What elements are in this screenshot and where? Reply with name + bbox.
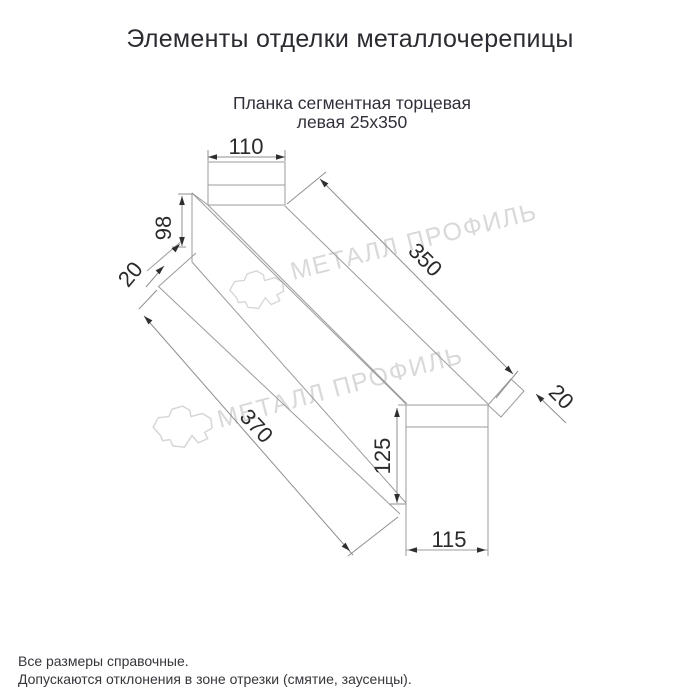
footer-notes: Все размеры справочные. Допускаются откл… xyxy=(18,652,412,688)
technical-drawing: МЕТАЛЛ ПРОФИЛЬ МЕТАЛЛ ПРОФИЛЬ xyxy=(0,0,700,700)
dim-label-115: 115 xyxy=(431,527,466,552)
dim-label-20-left: 20 xyxy=(113,257,148,292)
dim-label-110: 110 xyxy=(228,134,263,159)
metalprofil-logo-icon xyxy=(153,406,212,447)
footer-note-line1: Все размеры справочные. xyxy=(18,652,412,670)
watermark-text: МЕТАЛЛ ПРОФИЛЬ xyxy=(288,197,541,285)
footer-note-line2: Допускаются отклонения в зоне отрезки (с… xyxy=(18,670,412,688)
watermark-top: МЕТАЛЛ ПРОФИЛЬ xyxy=(230,197,540,308)
dim-label-98: 98 xyxy=(151,216,176,240)
metalprofil-logo-icon xyxy=(230,271,284,308)
dim-label-20-right: 20 xyxy=(544,379,579,414)
dim-label-125: 125 xyxy=(370,438,395,475)
